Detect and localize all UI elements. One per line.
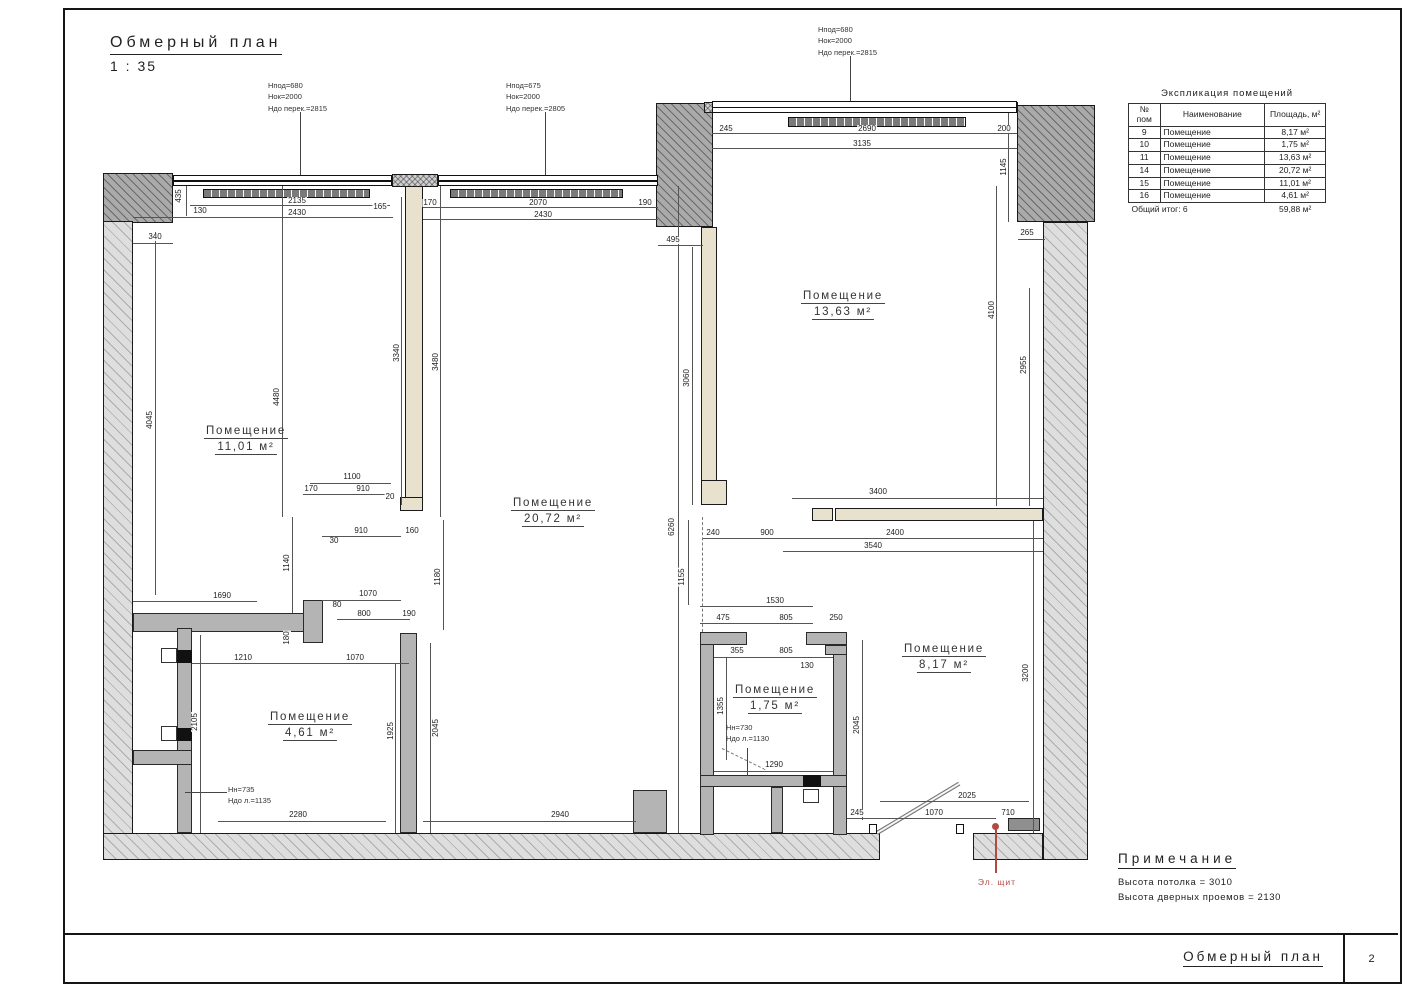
- fixture-room175: [803, 789, 819, 803]
- dimension-line: [700, 606, 813, 607]
- schedule-cell: 4,61 м²: [1265, 190, 1326, 203]
- dimension-label: 80: [332, 601, 343, 609]
- schedule-cell: 15: [1129, 177, 1161, 190]
- schedule-row: 9Помещение8,17 м²: [1129, 126, 1326, 139]
- dimension-line: [155, 232, 156, 595]
- dimension-label: 475: [715, 614, 730, 622]
- fixture-closet-2: [161, 726, 177, 741]
- dimension-line: [862, 640, 863, 820]
- drawing-sheet: Обмерный план 1 : 35: [0, 0, 1414, 1000]
- dimension-line: [1029, 288, 1030, 506]
- dimension-label: 1925: [387, 721, 395, 741]
- page-number: 2: [1368, 953, 1374, 965]
- door-jamb-left: [869, 824, 877, 834]
- room-area: 1,75 м²: [748, 700, 802, 714]
- wall-corner-top-left: [103, 173, 173, 223]
- dimension-line: [200, 635, 201, 833]
- partition-room13-room8: [835, 508, 1043, 521]
- dimension-label: 2025: [957, 792, 977, 800]
- dimension-line: [423, 821, 636, 822]
- window2-leader: [545, 112, 546, 175]
- dimension-line: [678, 186, 679, 833]
- dimension-label: 250: [828, 614, 843, 622]
- dimension-line: [423, 219, 658, 220]
- dimension-label: 1145: [1000, 157, 1008, 176]
- wall-room175-left: [700, 632, 714, 835]
- partition-room20-room13-foot: [701, 480, 727, 505]
- dimension-line: [658, 245, 703, 246]
- room-name: Помещение: [268, 711, 352, 725]
- dimension-label: 3400: [868, 488, 888, 496]
- dimension-label: 2105: [191, 712, 199, 732]
- notes-block: Примечание Высота потолка = 3010Высота д…: [1118, 850, 1388, 905]
- schedule-cell: 9: [1129, 126, 1161, 139]
- room-name: Помещение: [801, 290, 885, 304]
- dimension-line: [792, 498, 1043, 499]
- dimension-line: [996, 186, 997, 506]
- footer-drawing-title: Обмерный план: [1183, 949, 1323, 967]
- hatch-dashed-line: [722, 748, 766, 770]
- dimension-label: 1690: [212, 592, 232, 600]
- dimension-line: [703, 538, 1043, 539]
- electric-panel-label: Эл. щит: [978, 877, 1016, 887]
- dimension-label: 495: [665, 236, 680, 244]
- dimension-line: [443, 520, 444, 630]
- schedule-cell: 16: [1129, 190, 1161, 203]
- window-1: [173, 175, 392, 186]
- dimension-line: [337, 619, 410, 620]
- dimension-label: 190: [401, 610, 416, 618]
- room-schedule: Экспликация помещений № помНаименованиеП…: [1128, 88, 1326, 216]
- dimension-line: [292, 517, 293, 613]
- dimension-label: 435: [175, 188, 183, 203]
- schedule-total-label: Общий итог: 6: [1129, 203, 1265, 216]
- wall-room175-top-right: [806, 632, 847, 645]
- dimension-line: [430, 643, 431, 833]
- dimension-line: [692, 247, 693, 505]
- dimension-label: 245: [718, 125, 733, 133]
- electric-panel: [1008, 818, 1040, 831]
- window1-leader: [300, 112, 301, 175]
- window-annotation: Hпод=680Hок=2000Hдо перек.=2815: [268, 80, 327, 114]
- dimension-line: [714, 657, 833, 658]
- schedule-cell: 8,17 м²: [1265, 126, 1326, 139]
- fixture-annotation: Hн=730Hдо л.=1130: [726, 722, 769, 745]
- dimension-label: 4480: [273, 387, 281, 407]
- room-schedule-table: № помНаименованиеПлощадь, м² 9Помещение8…: [1128, 103, 1326, 216]
- dimension-label: 245: [849, 809, 864, 817]
- wall-exterior-left: [103, 221, 133, 860]
- dimension-line: [712, 133, 1017, 134]
- dimension-label: 2430: [533, 211, 553, 219]
- dimension-label: 2045: [432, 718, 440, 738]
- wall-closet-divider: [133, 750, 192, 765]
- dimension-label: 30: [329, 537, 340, 545]
- dimension-line: [133, 601, 257, 602]
- electric-panel-dot: [992, 823, 999, 830]
- schedule-cell: 10: [1129, 139, 1161, 152]
- dimension-line: [190, 205, 390, 206]
- dimension-line: [880, 801, 1029, 802]
- schedule-cell: 14: [1129, 164, 1161, 177]
- opening-dashed-line: [702, 517, 703, 632]
- dimension-label: 2135: [287, 197, 307, 205]
- dimension-label: 910: [355, 485, 370, 493]
- dimension-line: [1018, 239, 1045, 240]
- room-label: Помещение8,17 м²: [902, 643, 986, 673]
- dimension-label: 200: [996, 125, 1011, 133]
- dimension-line: [423, 207, 658, 208]
- dimension-label: 1155: [678, 567, 686, 586]
- dimension-label: 910: [353, 527, 368, 535]
- dimension-label: 800: [356, 610, 371, 618]
- dimension-line: [688, 520, 689, 605]
- dimension-line: [783, 551, 1043, 552]
- wall-block-top-right: [1017, 105, 1095, 222]
- dimension-label: 3340: [393, 343, 401, 363]
- schedule-cell: 11,01 м²: [1265, 177, 1326, 190]
- schedule-cell: Помещение: [1160, 126, 1265, 139]
- dimension-label: 3200: [1022, 663, 1030, 683]
- dimension-label: 170: [422, 199, 437, 207]
- partition-room20-room13: [701, 227, 717, 505]
- room-label: Помещение11,01 м²: [204, 425, 288, 455]
- schedule-cell: Помещение: [1160, 139, 1265, 152]
- dimension-line: [395, 663, 396, 833]
- dimension-line: [133, 243, 173, 244]
- room-area: 11,01 м²: [215, 441, 276, 455]
- schedule-cell: 20,72 м²: [1265, 164, 1326, 177]
- dimension-label: 1355: [717, 696, 725, 716]
- schedule-row: 16Помещение4,61 м²: [1129, 190, 1326, 203]
- wall-block-mid-top: [656, 103, 713, 227]
- dimension-label: 190: [637, 199, 652, 207]
- dimension-label: 1070: [345, 654, 365, 662]
- dimension-line: [440, 186, 441, 517]
- note-line: Высота дверных проемов = 2130: [1118, 891, 1388, 906]
- dimension-line: [1033, 521, 1034, 833]
- fixture-closet-1: [161, 648, 177, 663]
- room-name: Помещение: [204, 425, 288, 439]
- wall-exterior-bottom-right: [973, 833, 1043, 860]
- dimension-line: [714, 771, 833, 772]
- dimension-label: 3060: [683, 368, 691, 388]
- schedule-row: 14Помещение20,72 м²: [1129, 164, 1326, 177]
- wall-exterior-right: [1043, 222, 1088, 860]
- wall-stub-room20-south: [633, 790, 667, 833]
- dimension-label: 355: [729, 647, 744, 655]
- dimension-line: [310, 483, 391, 484]
- fixture-annotation: Hн=735Hдо л.=1135: [228, 784, 271, 807]
- wall-room175-top-right-step: [825, 645, 847, 655]
- dimension-label: 340: [147, 233, 162, 241]
- dimension-label: 2690: [857, 125, 877, 133]
- dimension-line: [712, 148, 1017, 149]
- wall-compartment-divider: [771, 787, 783, 833]
- dimension-label: 900: [759, 529, 774, 537]
- radiator-2: [450, 189, 623, 198]
- dimension-label: 4045: [146, 410, 154, 430]
- radiator-3: [788, 117, 966, 127]
- dimension-label: 160: [404, 527, 419, 535]
- dimension-label: 165: [372, 203, 387, 211]
- dimension-line: [401, 197, 402, 505]
- notes-title: Примечание: [1118, 851, 1236, 869]
- partition-room11-room20-foot: [400, 497, 423, 511]
- schedule-row: 15Помещение11,01 м²: [1129, 177, 1326, 190]
- dimension-label: 3480: [432, 352, 440, 372]
- entrance-door-leaf: [876, 782, 960, 835]
- dimension-line: [192, 663, 409, 664]
- wall-room175-right: [833, 632, 847, 835]
- dimension-label: 1070: [924, 809, 944, 817]
- schedule-cell: Помещение: [1160, 190, 1265, 203]
- wall-exterior-bottom: [103, 833, 880, 860]
- schedule-cell: 11: [1129, 152, 1161, 165]
- dimension-line: [700, 623, 813, 624]
- vent-room175: [803, 775, 821, 787]
- room-area: 4,61 м²: [283, 727, 337, 741]
- room-label: Помещение4,61 м²: [268, 711, 352, 741]
- room-name: Помещение: [733, 684, 817, 698]
- window-3: [712, 101, 1017, 113]
- wall-room175-top-left: [700, 632, 747, 645]
- fixture-leader-2: [185, 792, 227, 793]
- schedule-col-header: № пом: [1129, 104, 1161, 127]
- door-jamb-right: [956, 824, 964, 834]
- room-label: Помещение13,63 м²: [801, 290, 885, 320]
- window-annotation: Hпод=680Hок=2000Hдо перек.=2815: [818, 24, 877, 58]
- dimension-label: 130: [192, 207, 207, 215]
- dimension-line: [847, 818, 996, 819]
- note-line: Высота потолка = 3010: [1118, 876, 1388, 891]
- dimension-label: 3540: [863, 542, 883, 550]
- schedule-total-value: 59,88 м²: [1265, 203, 1326, 216]
- room-schedule-title: Экспликация помещений: [1128, 88, 1326, 99]
- schedule-cell: Помещение: [1160, 164, 1265, 177]
- dimension-label: 1210: [233, 654, 253, 662]
- schedule-row: 10Помещение1,75 м²: [1129, 139, 1326, 152]
- dimension-label: 710: [1000, 809, 1015, 817]
- vent-closet-1: [177, 650, 192, 663]
- wall-room4-top: [133, 613, 307, 632]
- room-label: Помещение20,72 м²: [511, 497, 595, 527]
- dimension-label: 2955: [1020, 355, 1028, 375]
- wall-room175-bottom: [700, 775, 847, 787]
- dimension-line: [303, 494, 391, 495]
- schedule-cell: Помещение: [1160, 152, 1265, 165]
- dimension-label: 1530: [765, 597, 785, 605]
- dimension-label: 2045: [853, 715, 861, 735]
- room-name: Помещение: [902, 643, 986, 657]
- room-area: 13,63 м²: [812, 306, 874, 320]
- window-annotation: Hпод=675Hок=2000Hдо перек.=2805: [506, 80, 565, 114]
- dimension-label: 2400: [885, 529, 905, 537]
- room-name: Помещение: [511, 497, 595, 511]
- dimension-label: 805: [778, 614, 793, 622]
- dimension-label: 2280: [288, 811, 308, 819]
- dimension-label: 180: [283, 630, 291, 645]
- dimension-label: 2070: [528, 199, 548, 207]
- dimension-line: [133, 217, 393, 218]
- schedule-row: 11Помещение13,63 м²: [1129, 152, 1326, 165]
- partition-room13-room8-stub: [812, 508, 833, 521]
- dimension-label: 1180: [434, 567, 442, 586]
- electric-panel-leader: [995, 828, 997, 873]
- dimension-label: 1140: [283, 553, 291, 572]
- dimension-label: 1070: [358, 590, 378, 598]
- dimension-label: 170: [303, 485, 318, 493]
- dimension-label: 20: [385, 493, 396, 501]
- dimension-label: 3135: [852, 140, 872, 148]
- room-label: Помещение1,75 м²: [733, 684, 817, 714]
- footer-title-bar: Обмерный план 2: [63, 933, 1398, 982]
- partition-room11-room20: [405, 186, 423, 511]
- schedule-col-header: Площадь, м²: [1265, 104, 1326, 127]
- dimension-line: [186, 186, 187, 216]
- dimension-label: 6260: [668, 517, 676, 537]
- schedule-cell: 13,63 м²: [1265, 152, 1326, 165]
- dimension-label: 2940: [550, 811, 570, 819]
- dimension-line: [282, 186, 283, 517]
- room-area: 20,72 м²: [522, 513, 584, 527]
- dimension-line: [218, 821, 386, 822]
- dimension-label: 2430: [287, 209, 307, 217]
- schedule-col-header: Наименование: [1160, 104, 1265, 127]
- dimension-label: 265: [1019, 229, 1034, 237]
- schedule-cell: 1,75 м²: [1265, 139, 1326, 152]
- dimension-line: [726, 658, 727, 760]
- dimension-label: 4100: [988, 300, 996, 320]
- dimension-label: 805: [778, 647, 793, 655]
- dimension-label: 240: [705, 529, 720, 537]
- page-number-box: 2: [1343, 935, 1398, 982]
- schedule-cell: Помещение: [1160, 177, 1265, 190]
- window3-leader: [850, 56, 851, 101]
- dimension-label: 130: [799, 662, 814, 670]
- dimension-label: 1290: [764, 761, 784, 769]
- dimension-label: 1100: [342, 473, 361, 481]
- room-area: 8,17 м²: [917, 659, 971, 673]
- wall-room4-top-step: [303, 600, 323, 643]
- window-2: [438, 175, 658, 186]
